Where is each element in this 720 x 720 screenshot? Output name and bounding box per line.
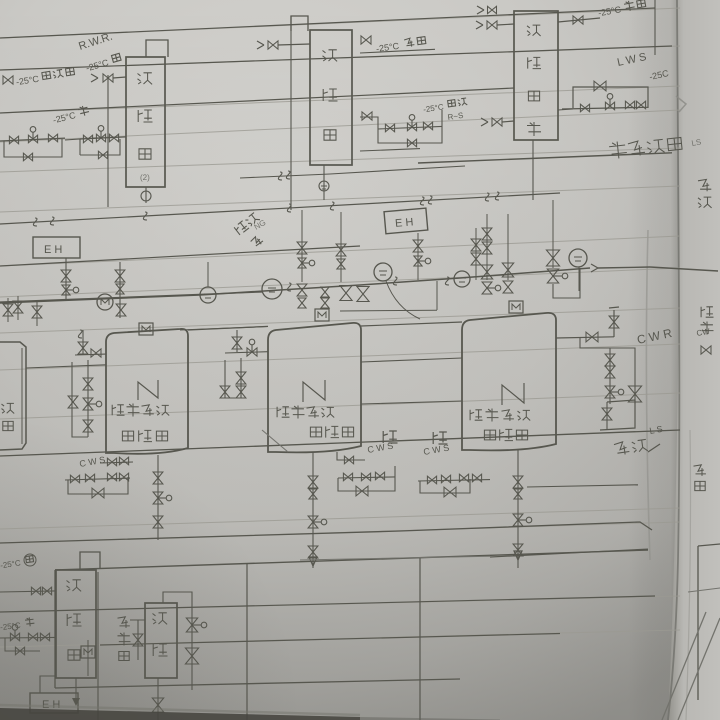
svg-text:E H: E H [44,244,62,256]
svg-text:(2): (2) [140,173,150,182]
svg-text:LS: LS [691,137,702,148]
svg-text:E H: E H [395,216,414,230]
